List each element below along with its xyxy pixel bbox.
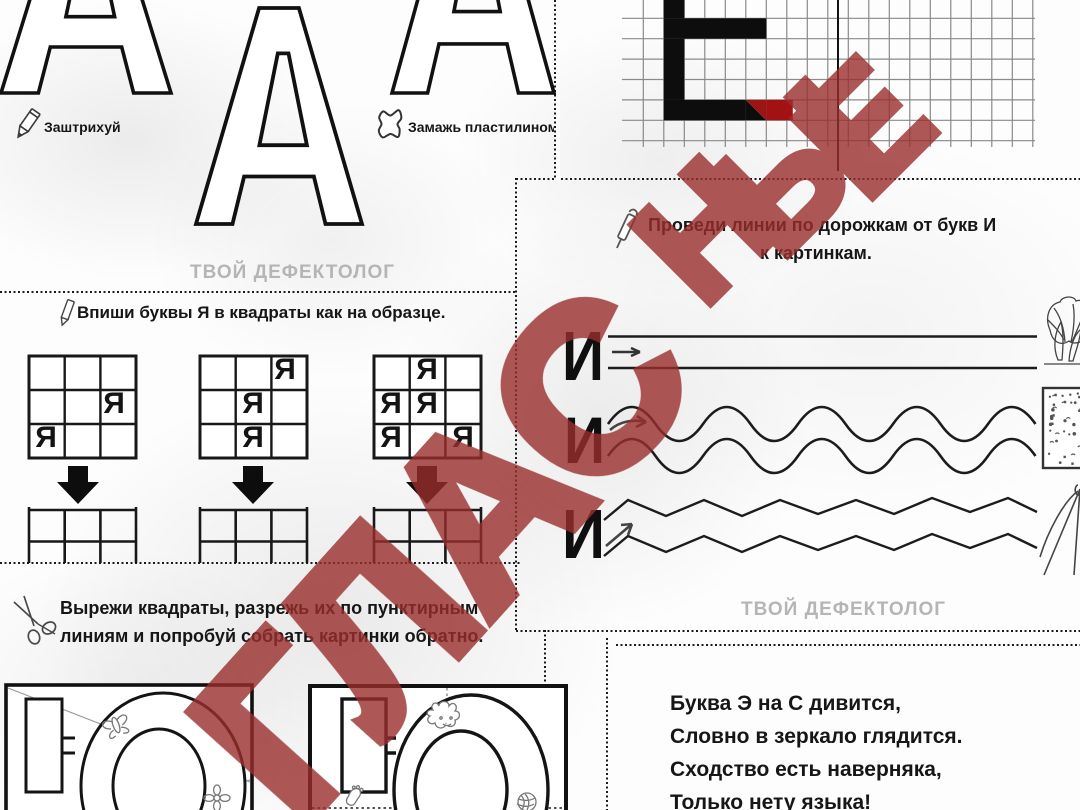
svg-text:ГЛАС: ГЛАС [142,244,738,810]
